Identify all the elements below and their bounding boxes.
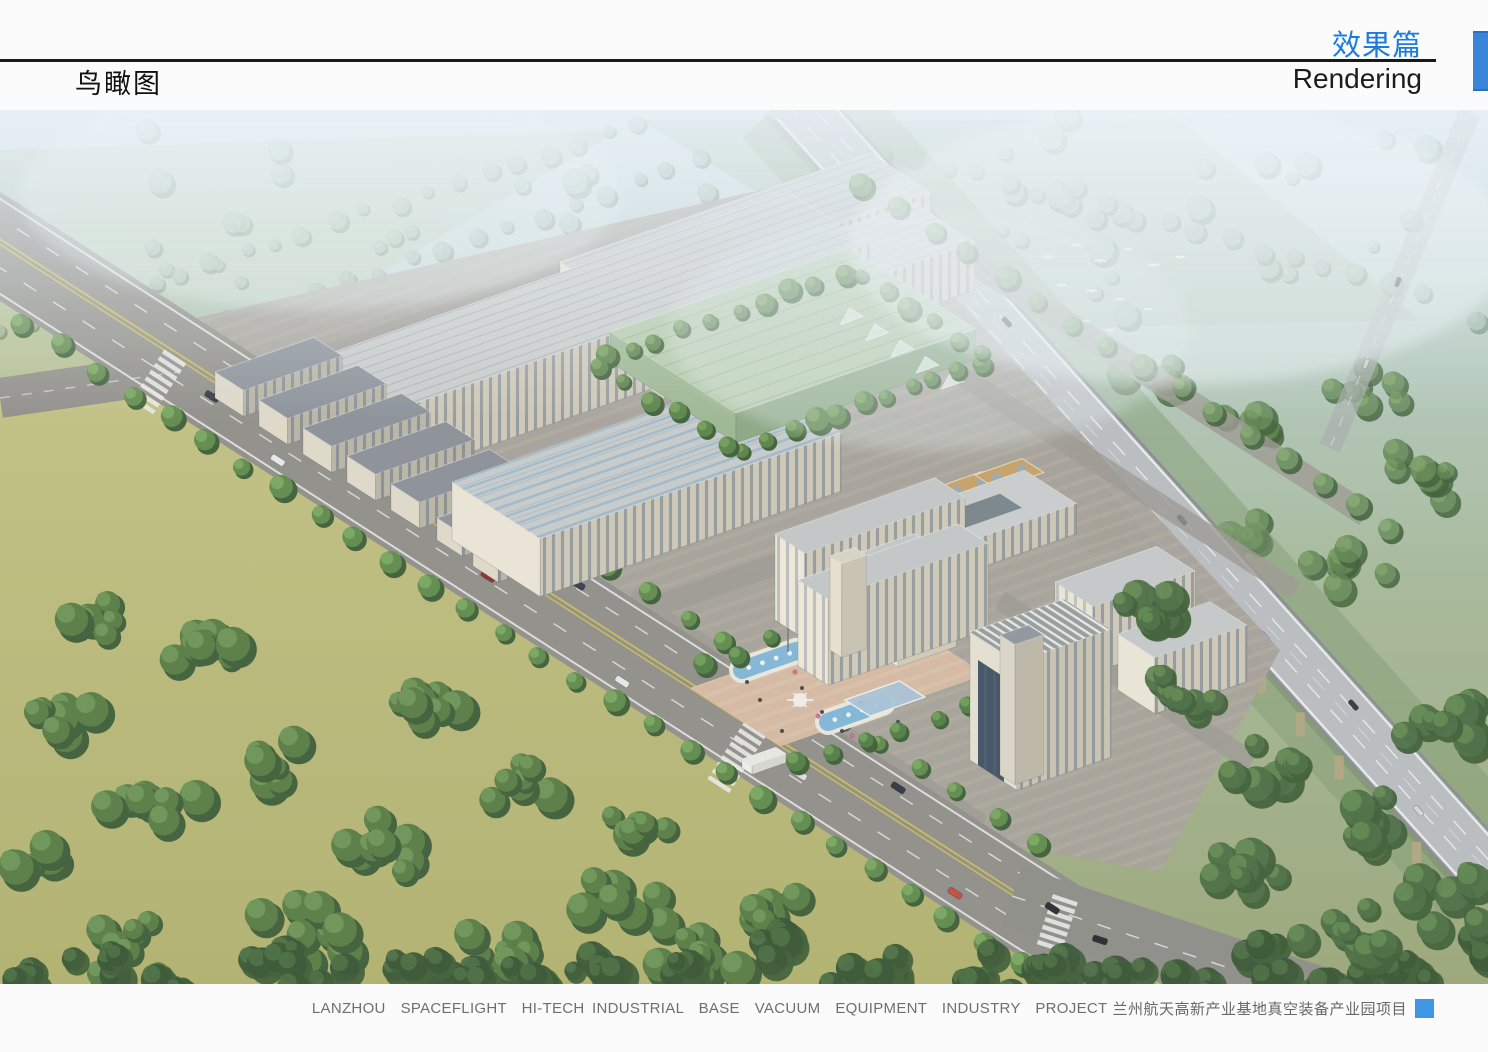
- project-caption: LANZHOU SPACEFLIGHT HI-TECH INDUSTRIAL B…: [312, 998, 1434, 1019]
- page-footer: LANZHOU SPACEFLIGHT HI-TECH INDUSTRIAL B…: [0, 984, 1488, 1052]
- aerial-rendering-svg: [0, 110, 1488, 984]
- caption-chinese: 兰州航天高新产业基地真空装备产业园项目: [1112, 998, 1407, 1019]
- footer-accent-square: [1415, 999, 1434, 1018]
- section-title-zh: 效果篇: [1332, 22, 1422, 64]
- header-rule: [0, 59, 1436, 62]
- page-title: 鸟瞰图: [75, 62, 162, 101]
- header-accent-bar: [1473, 31, 1488, 91]
- caption-english: LANZHOU SPACEFLIGHT HI-TECH INDUSTRIAL B…: [312, 1000, 1108, 1017]
- section-title-en: Rendering: [1293, 63, 1422, 95]
- rendering-image: [0, 110, 1488, 984]
- presentation-page: 效果篇 Rendering 鸟瞰图 LANZHOU SPACEFLIGHT HI…: [0, 0, 1488, 1052]
